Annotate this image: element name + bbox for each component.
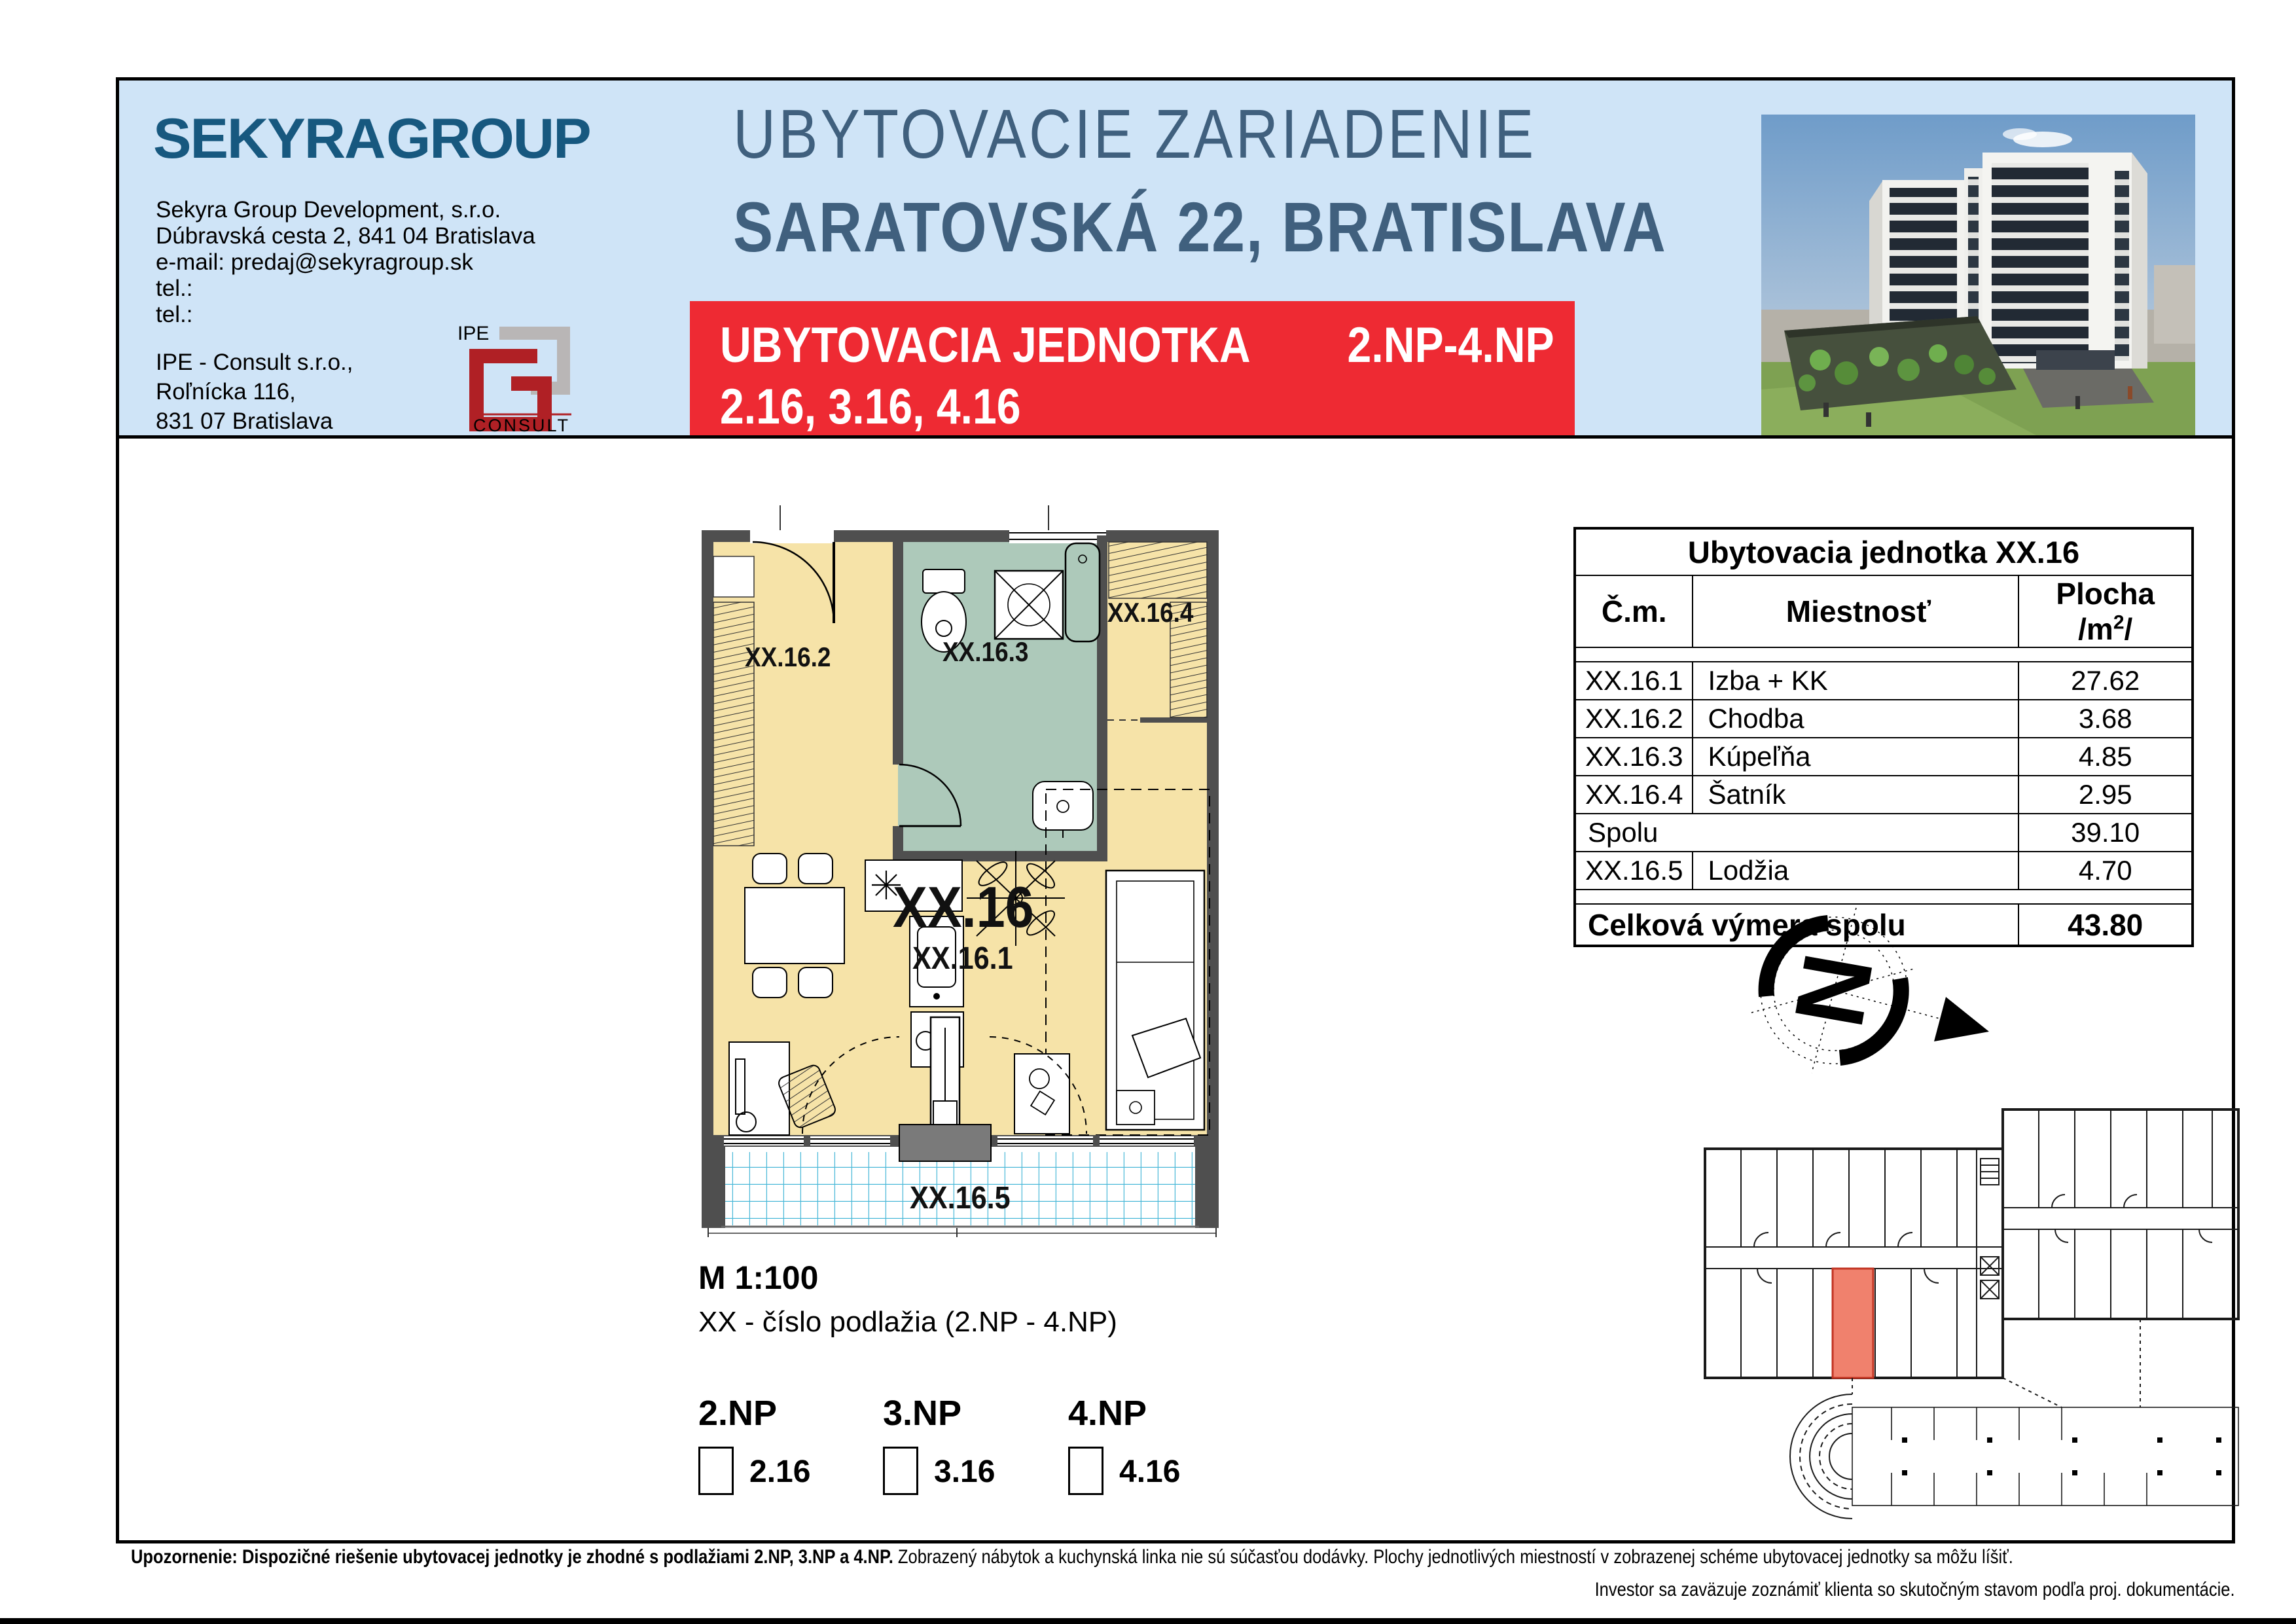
company-line: Dúbravská cesta 2, 841 04 Bratislava [156, 223, 535, 249]
scan-edge [0, 1618, 2296, 1624]
table-row: XX.16.5 Lodžia 4.70 [1575, 852, 2193, 890]
shower-icon [995, 571, 1063, 639]
sekyra-group-logo: SEKYRA GROUP [153, 107, 590, 171]
document-page: { "header": { "logo": "SEKYRA GROUP", "c… [0, 0, 2296, 1624]
floor-option-4np: 4.NP 4.16 [1068, 1393, 1238, 1495]
ipe-consult-logo: IPE CONSULT [456, 323, 574, 435]
highlighted-unit [1833, 1269, 1873, 1378]
north-compass-icon: N [1736, 899, 2037, 1102]
floor-checkbox-4np[interactable] [1068, 1447, 1103, 1495]
label-unit: XX.16 [893, 875, 1034, 939]
building-site-plan [1695, 1100, 2245, 1525]
plan-scale: M 1:100 [698, 1259, 818, 1297]
label-lodzia: XX.16.5 [910, 1180, 1011, 1216]
label-kupelna: XX.16.3 [942, 637, 1028, 668]
coffee-table [1014, 1054, 1069, 1134]
building-rendering [1761, 115, 2195, 435]
loggia-door [899, 1125, 991, 1161]
unit-label: 2.16 [749, 1454, 810, 1495]
unit-banner: UBYTOVACIA JEDNOTKA2.NP-4.NP 2.16, 3.16,… [690, 301, 1575, 435]
unit-label: 4.16 [1119, 1454, 1180, 1495]
page-subtitle: SARATOVSKÁ 22, BRATISLAVA [733, 186, 1534, 268]
subtotal-row: Spolu 39.10 [1575, 814, 2193, 852]
table-row: XX.16.2 Chodba 3.68 [1575, 700, 2193, 738]
table-row: XX.16.4 Šatník 2.95 [1575, 776, 2193, 814]
compass-letter: N [1774, 946, 1894, 1035]
page-title: UBYTOVACIE ZARIADENIE [733, 95, 1534, 174]
label-izba: XX.16.1 [912, 941, 1013, 976]
unit-floor-plan: XX.16.2 XX.16.3 XX.16.4 XX.16 XX.16.1 XX… [682, 504, 1245, 1237]
unit-label: 3.16 [934, 1454, 995, 1495]
label-satnik: XX.16.4 [1107, 598, 1193, 628]
ipe-line: 831 07 Bratislava [156, 406, 353, 436]
disclaimer-line2: Investor sa zaväzuje zoznámiť klienta so… [1595, 1579, 2235, 1601]
floor-checkbox-2np[interactable] [698, 1447, 734, 1495]
company-line: Sekyra Group Development, s.r.o. [156, 197, 535, 223]
main-titles: UBYTOVACIE ZARIADENIE SARATOVSKÁ 22, BRA… [662, 95, 1605, 268]
floor-option-3np: 3.NP 3.16 [883, 1393, 1053, 1495]
page-frame: SEKYRA GROUP Sekyra Group Development, s… [116, 77, 2235, 1543]
plan-note: XX - číslo podlažia (2.NP - 4.NP) [698, 1306, 1117, 1339]
svg-text:IPE: IPE [457, 323, 489, 344]
col-header-area: Plocha /m2/ [2018, 575, 2193, 647]
col-header-room: Miestnosť [1693, 575, 2018, 647]
company-info: Sekyra Group Development, s.r.o. Dúbravs… [156, 197, 535, 328]
floor-label: 2.NP [698, 1393, 869, 1434]
disclaimer-regular: Zobrazený nábytok a kuchynská linka nie … [893, 1546, 2013, 1568]
ipe-logo-icon: IPE CONSULT [456, 323, 574, 435]
table-row: XX.16.1 Izba + KK 27.62 [1575, 662, 2193, 700]
sofa-bed [1106, 871, 1204, 1130]
bathtub-icon [1066, 543, 1100, 641]
banner-units: 2.16, 3.16, 4.16 [720, 378, 1021, 435]
banner-label: UBYTOVACIA JEDNOTKA [720, 317, 1251, 373]
company-email: e-mail: predaj@sekyragroup.sk [156, 249, 535, 276]
floor-label: 3.NP [883, 1393, 1053, 1434]
disclaimer-line1: Upozornenie: Dispozičné riešenie ubytova… [131, 1546, 1920, 1568]
col-header-cm: Č.m. [1575, 575, 1693, 647]
building-photo [1761, 115, 2195, 435]
wardrobe-hatch [1109, 542, 1207, 598]
table-title: Ubytovacia jednotka XX.16 [1575, 528, 2193, 575]
header: SEKYRA GROUP Sekyra Group Development, s… [119, 81, 2232, 439]
floor-checkbox-3np[interactable] [883, 1447, 918, 1495]
floor-option-2np: 2.NP 2.16 [698, 1393, 869, 1495]
disclaimer-bold: Upozornenie: Dispozičné riešenie ubytova… [131, 1546, 893, 1568]
table-row: XX.16.3 Kúpeľňa 4.85 [1575, 738, 2193, 776]
company-tel: tel.: [156, 276, 535, 302]
wardrobe-hatch [713, 602, 754, 846]
floor-label: 4.NP [1068, 1393, 1238, 1434]
svg-text:CONSULT: CONSULT [473, 416, 570, 435]
disclaimer: Upozornenie: Dispozičné riešenie ubytova… [131, 1546, 2235, 1568]
ipe-line: IPE - Consult s.r.o., [156, 348, 353, 377]
banner-floors: 2.NP-4.NP [1348, 317, 1554, 373]
label-chodba: XX.16.2 [745, 642, 831, 673]
room-divider [931, 1017, 960, 1139]
area-table: Ubytovacia jednotka XX.16 Č.m. Miestnosť… [1573, 527, 2194, 947]
ipe-consult-info: IPE - Consult s.r.o., Roľnícka 116, 831 … [156, 348, 353, 436]
ipe-line: Roľnícka 116, [156, 377, 353, 406]
